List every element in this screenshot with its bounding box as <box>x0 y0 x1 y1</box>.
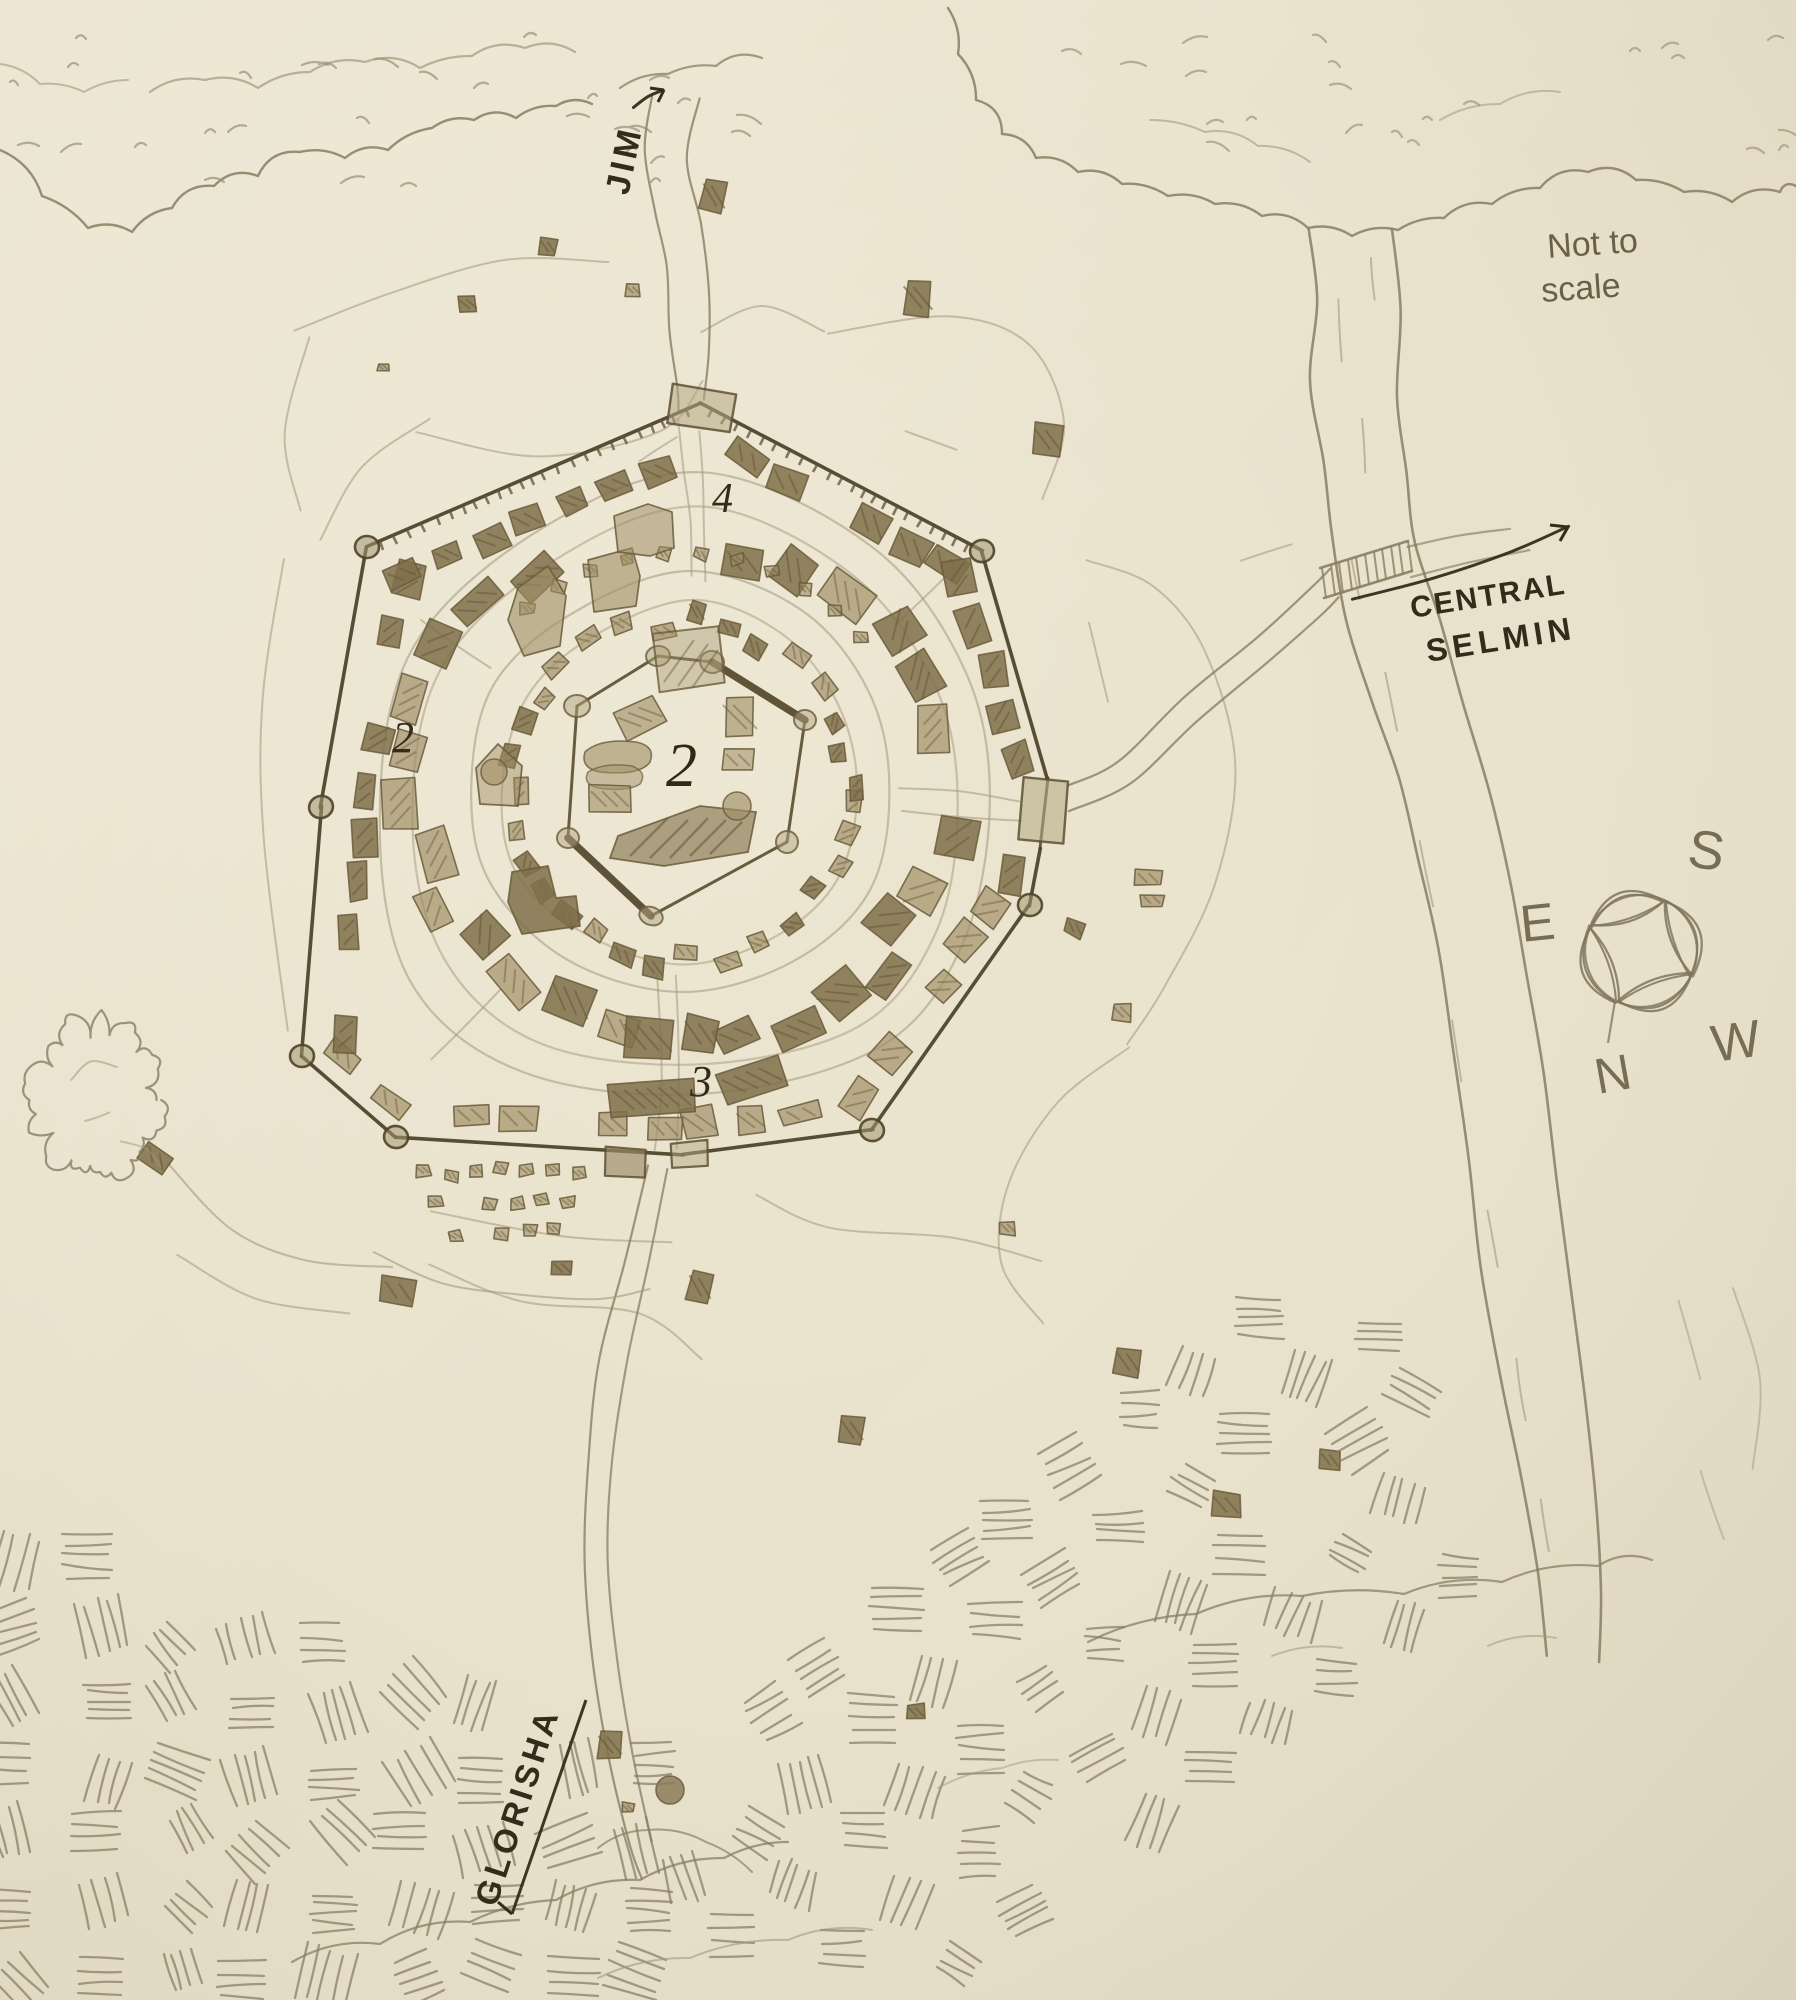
svg-text:2: 2 <box>392 713 414 762</box>
svg-text:scale: scale <box>1540 267 1622 310</box>
svg-text:4: 4 <box>712 476 733 522</box>
svg-text:2: 2 <box>666 732 697 800</box>
svg-text:E: E <box>1517 893 1558 954</box>
svg-text:3: 3 <box>689 1057 712 1106</box>
svg-text:Not to: Not to <box>1546 222 1639 266</box>
svg-text:W: W <box>1708 1010 1765 1074</box>
